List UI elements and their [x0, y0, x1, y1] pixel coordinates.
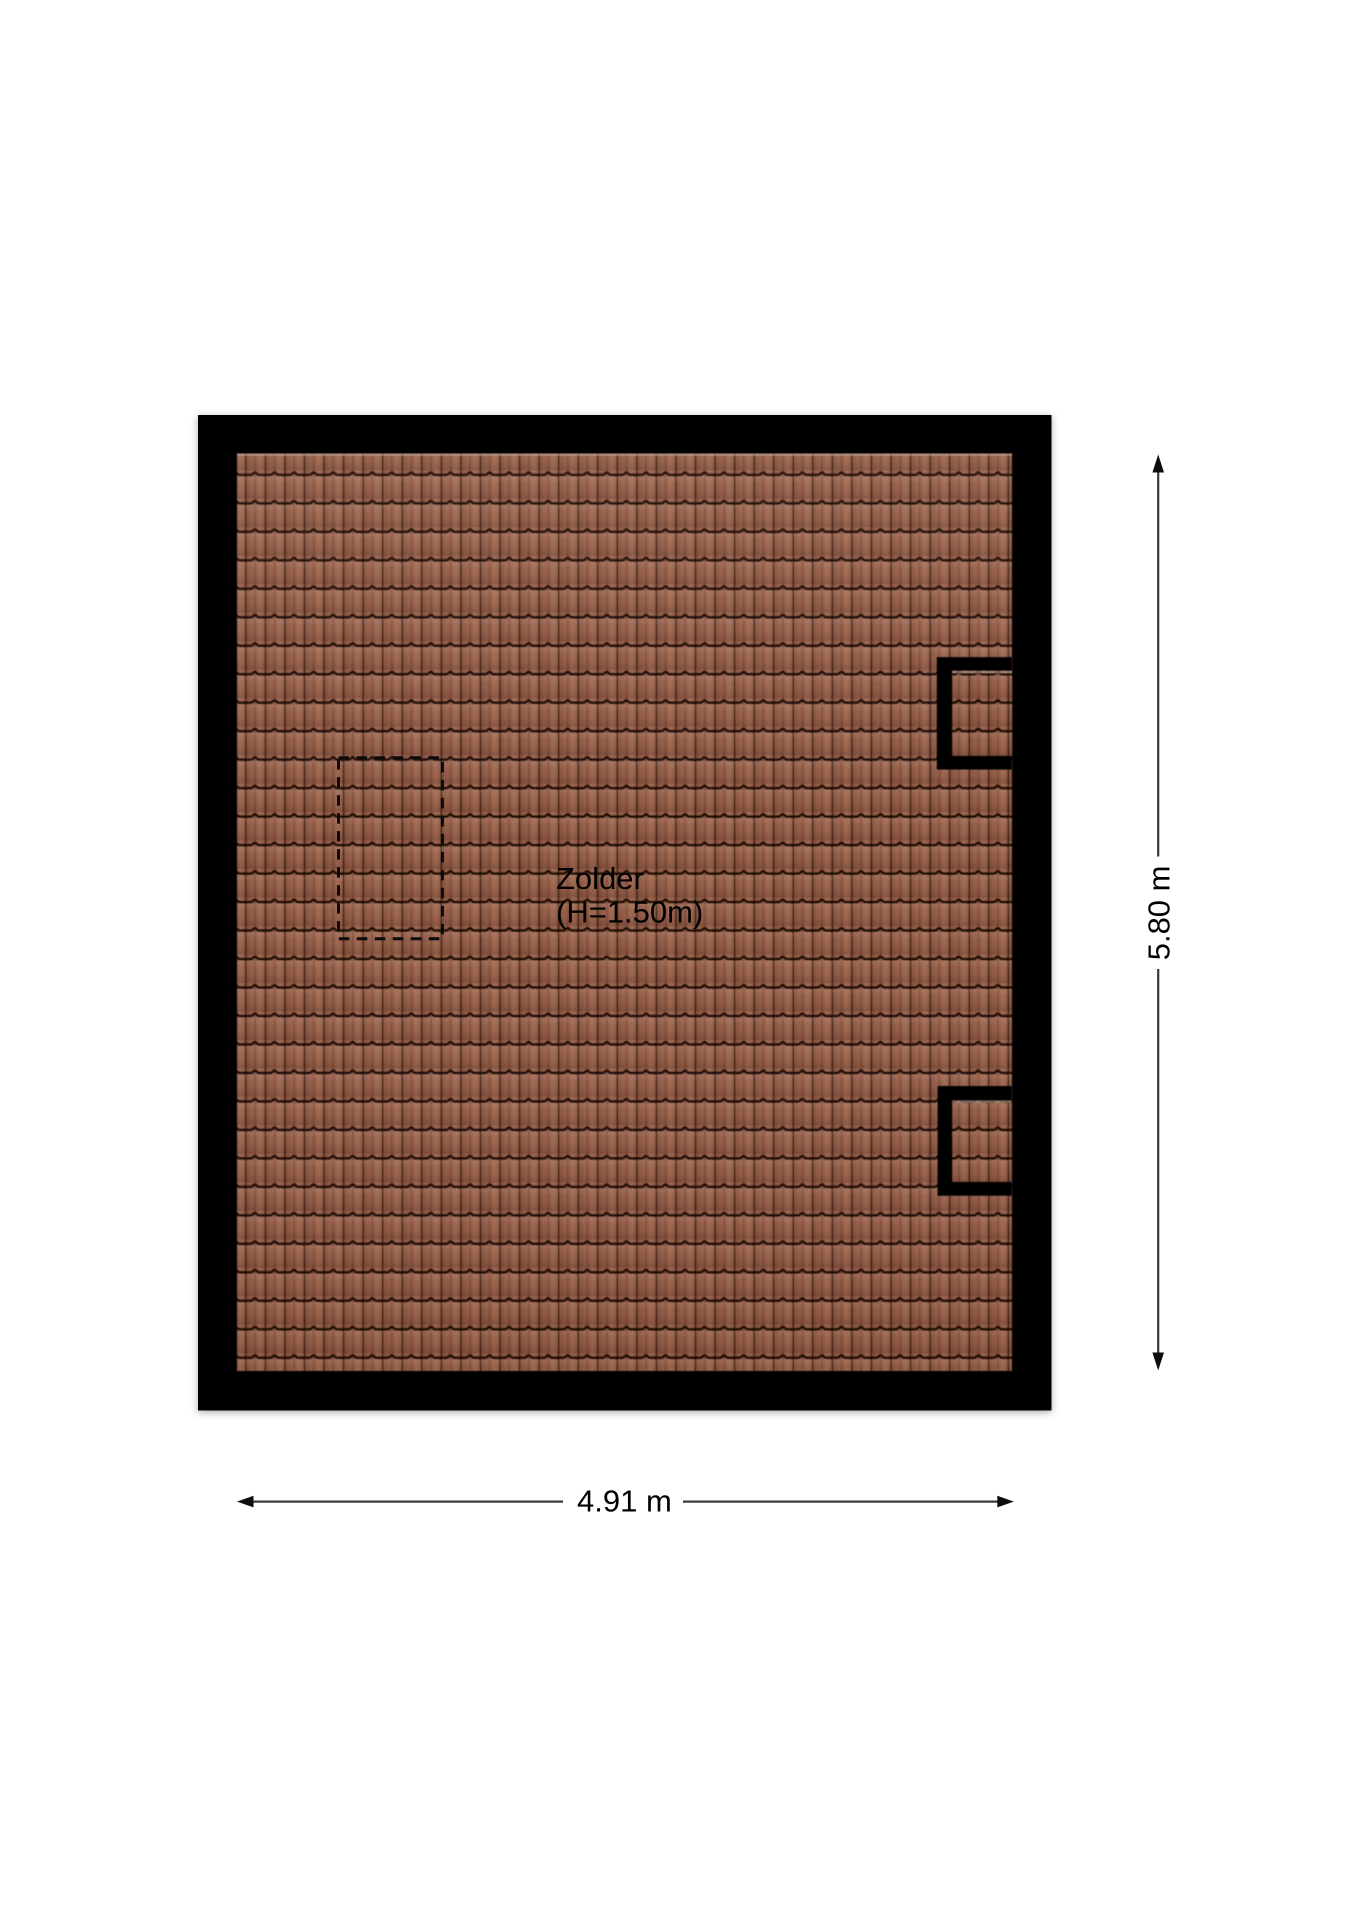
svg-text:Zolder: Zolder — [556, 861, 644, 896]
svg-text:5.80 m: 5.80 m — [1142, 866, 1177, 961]
svg-text:4.91 m: 4.91 m — [577, 1484, 672, 1519]
svg-text:(H=1.50m): (H=1.50m) — [556, 895, 703, 930]
